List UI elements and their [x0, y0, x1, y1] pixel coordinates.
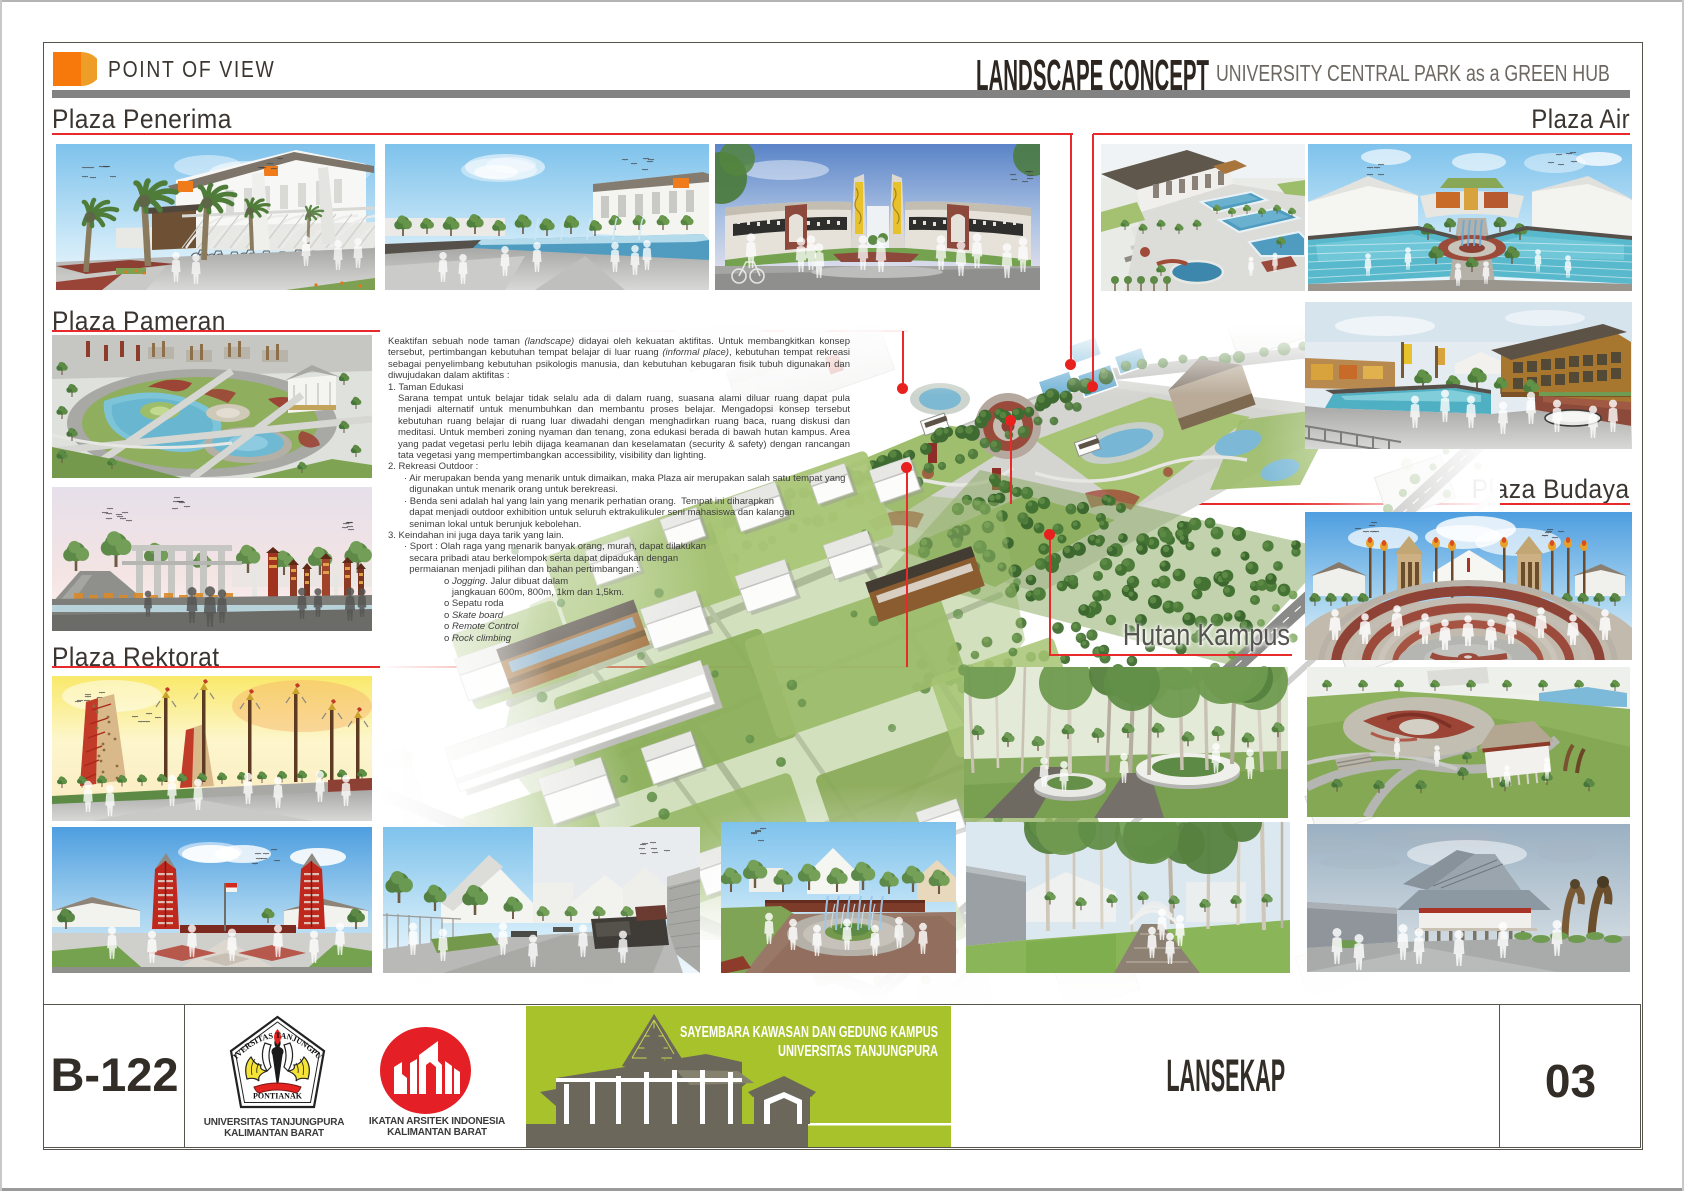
svg-text:PONTIANAK: PONTIANAK [253, 1092, 303, 1101]
svg-text:SAYEMBARA KAWASAN DAN GEDUNG K: SAYEMBARA KAWASAN DAN GEDUNG KAMPUS [680, 1024, 938, 1041]
svg-text:UNIVERSITAS TANJUNGPURA: UNIVERSITAS TANJUNGPURA [778, 1043, 938, 1060]
